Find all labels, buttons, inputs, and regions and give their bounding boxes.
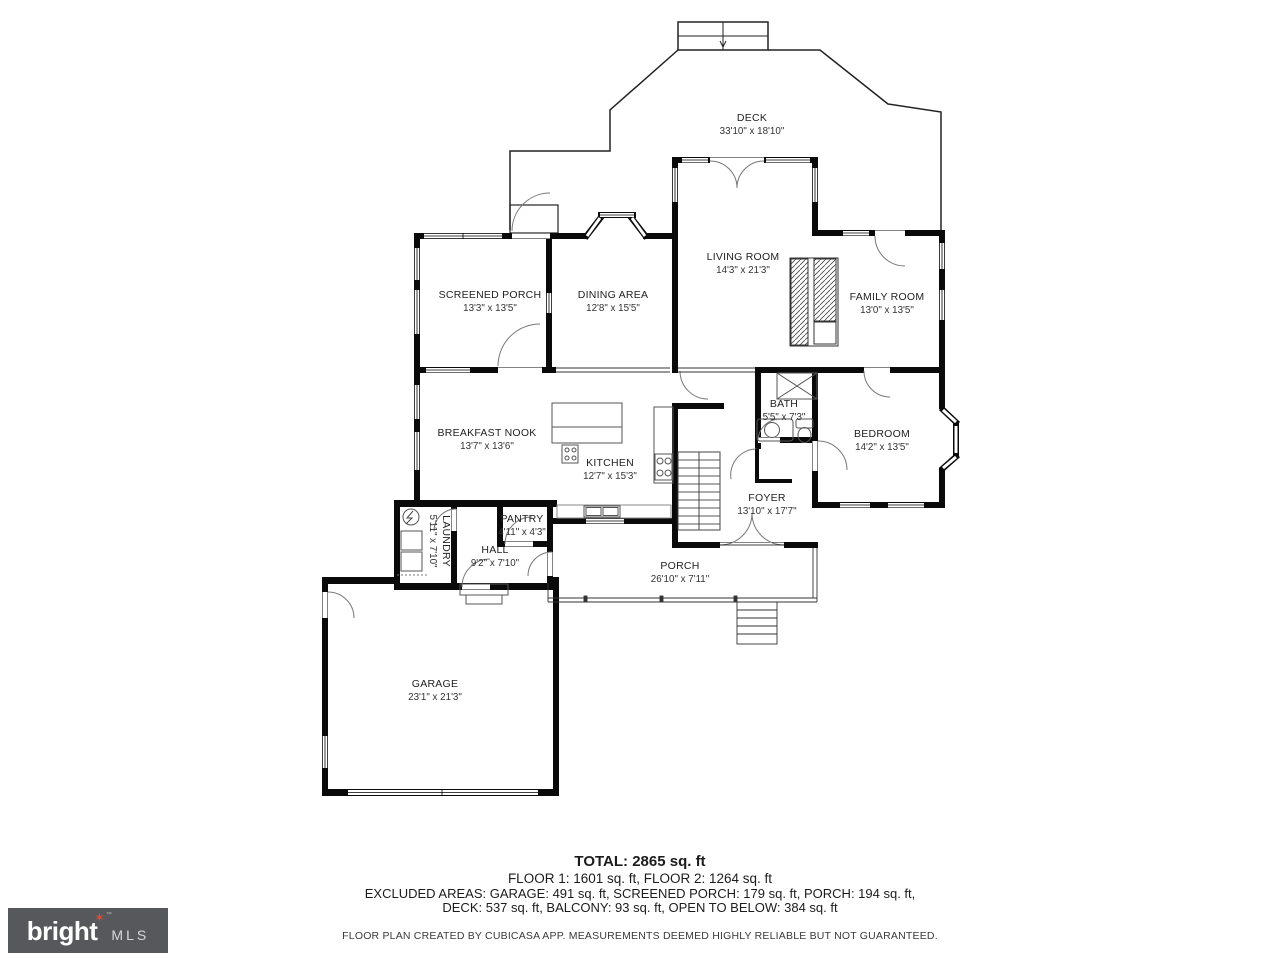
room-label-pantry: PANTRY 4'11" x 4'3" [498, 513, 546, 539]
porch-steps [737, 602, 777, 644]
total-area-text: TOTAL: 2865 sq. ft [0, 853, 1280, 870]
bath-sink [765, 423, 780, 438]
room-label-bedroom: BEDROOM 14'2" x 13'5" [854, 428, 910, 454]
floor-plan-drawing [0, 0, 1280, 960]
excluded-areas-line2: DECK: 537 sq. ft, BALCONY: 93 sq. ft, OP… [0, 900, 1280, 915]
room-label-dining-area: DINING AREA 12'8" x 15'5" [578, 289, 648, 315]
staircase [678, 452, 720, 530]
windows [323, 158, 958, 768]
dryer [401, 552, 422, 571]
room-label-living-room: LIVING ROOM 14'3" x 21'3" [707, 251, 780, 277]
room-label-kitchen: KITCHEN 12'7" x 15'3" [583, 457, 637, 483]
bright-mls-logo: bright ✶ ™ MLS [8, 908, 168, 953]
logo-trademark: ™ [106, 912, 112, 918]
room-label-foyer: FOYER 13'10" x 17'7" [737, 492, 796, 518]
logo-brand-text: bright [27, 916, 98, 946]
room-label-laundry: LAUNDRY 5'11" x 7'10" [426, 514, 452, 567]
fireplace [790, 258, 838, 346]
room-label-family-room: FAMILY ROOM 13'0" x 13'5" [850, 291, 925, 317]
laundry-fixtures [397, 509, 427, 575]
electrical-panel-icon [406, 511, 413, 524]
deck-landing [510, 205, 558, 233]
excluded-areas-line1: EXCLUDED AREAS: GARAGE: 491 sq. ft, SCRE… [0, 886, 1280, 901]
room-label-screened-porch: SCREENED PORCH 13'3" x 13'5" [439, 289, 542, 315]
room-label-deck: DECK 33'10" x 18'10" [720, 112, 785, 138]
room-label-breakfast-nook: BREAKFAST NOOK 13'7" x 13'6" [438, 427, 537, 453]
room-label-hall: HALL 9'2" x 7'10" [471, 544, 519, 570]
shower [777, 373, 817, 399]
disclaimer-text: FLOOR PLAN CREATED BY CUBICASA APP. MEAS… [0, 930, 1280, 942]
floor-plan-page: DECK 33'10" x 18'10" LIVING ROOM 14'3" x… [0, 0, 1280, 960]
washer [401, 531, 422, 550]
room-label-garage: GARAGE 23'1" x 21'3" [408, 678, 462, 704]
logo-star-icon: ✶ [94, 911, 104, 924]
logo-suffix-text: MLS [111, 927, 149, 943]
floor-areas-text: FLOOR 1: 1601 sq. ft, FLOOR 2: 1264 sq. … [0, 871, 1280, 886]
room-label-porch: PORCH 26'10" x 7'11" [651, 560, 709, 586]
room-label-bath: BATH 5'5" x 7'3" [763, 398, 806, 424]
